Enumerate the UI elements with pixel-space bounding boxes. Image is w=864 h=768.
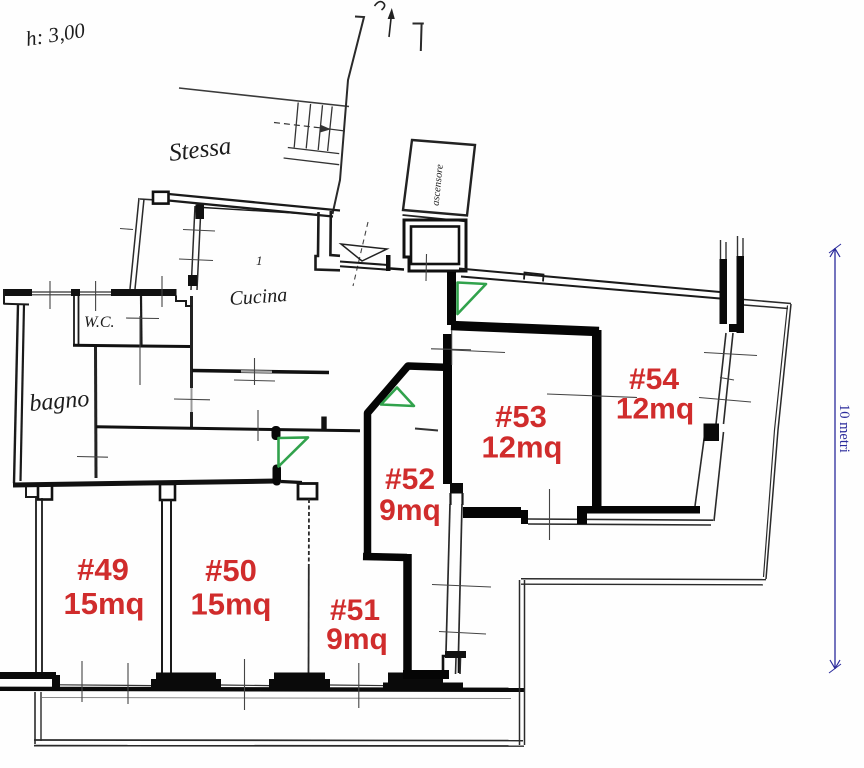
svg-text:9mq: 9mq	[326, 623, 388, 656]
svg-text:Cucina: Cucina	[229, 284, 288, 310]
svg-text:#52: #52	[385, 463, 435, 496]
svg-text:1: 1	[256, 253, 263, 268]
svg-text:bagno: bagno	[28, 386, 90, 417]
svg-text:15mq: 15mq	[191, 587, 272, 622]
svg-text:12mq: 12mq	[616, 393, 694, 426]
svg-text:9mq: 9mq	[379, 494, 441, 527]
svg-text:W.C.: W.C.	[84, 314, 115, 331]
svg-text:#50: #50	[205, 553, 257, 588]
svg-text:12mq: 12mq	[482, 430, 563, 465]
svg-text:#54: #54	[629, 363, 679, 396]
svg-text:10 metri: 10 metri	[836, 404, 852, 453]
svg-text:15mq: 15mq	[64, 586, 145, 621]
svg-text:#49: #49	[77, 552, 129, 587]
